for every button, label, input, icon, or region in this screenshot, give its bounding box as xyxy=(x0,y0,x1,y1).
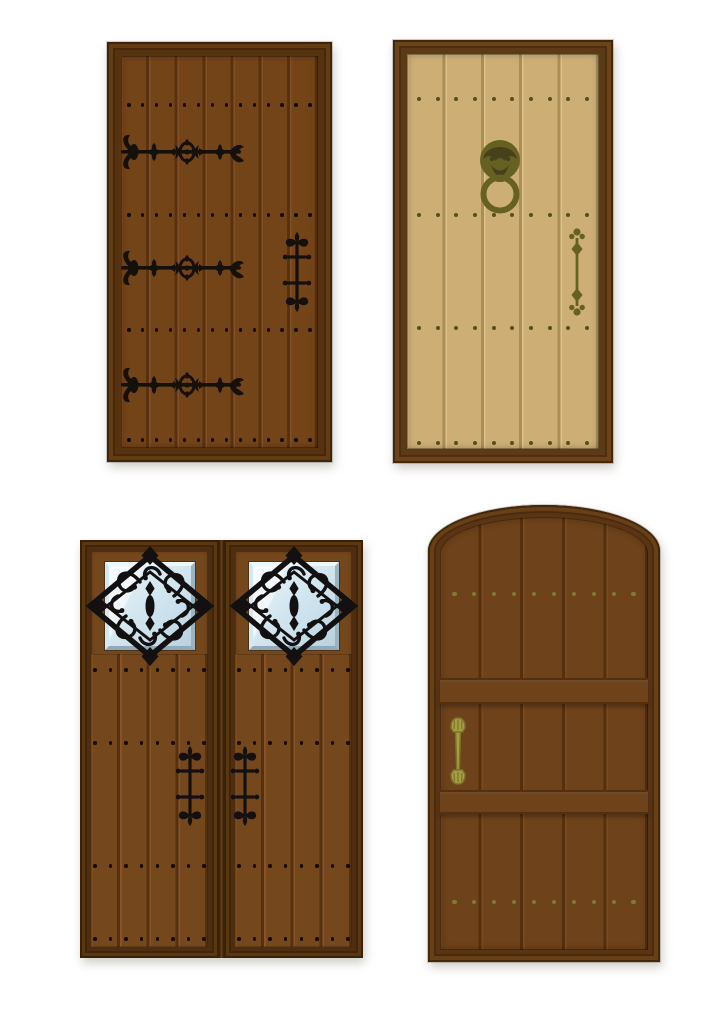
nail-dot xyxy=(346,937,350,941)
nail-dot xyxy=(532,592,537,597)
ornate-hinge-icon xyxy=(117,365,247,405)
nail-dot xyxy=(473,97,477,101)
nail-dot xyxy=(253,103,257,107)
nail-dot xyxy=(492,441,496,445)
nail-dot xyxy=(436,441,440,445)
nail-dot xyxy=(225,328,229,332)
nail-dot xyxy=(452,900,457,905)
nail-row xyxy=(237,667,350,673)
nail-dot xyxy=(187,741,191,745)
nail-dot xyxy=(239,328,243,332)
nail-dot xyxy=(183,438,187,442)
nail-dot xyxy=(155,438,159,442)
nail-dot xyxy=(93,937,97,941)
nail-dot xyxy=(202,864,206,868)
nail-dot xyxy=(124,864,128,868)
ring-knocker-icon xyxy=(470,136,530,220)
nail-dot xyxy=(548,441,552,445)
nail-dot xyxy=(268,668,272,672)
nail-dot xyxy=(183,328,187,332)
nail-dot xyxy=(294,103,298,107)
nail-dot xyxy=(331,864,335,868)
nail-dot xyxy=(140,668,144,672)
nail-row xyxy=(93,667,206,673)
nail-dot xyxy=(472,592,477,597)
nail-dot xyxy=(552,592,557,597)
cross-handle-icon xyxy=(172,746,208,826)
nail-dot xyxy=(202,668,206,672)
nail-dot xyxy=(473,441,477,445)
nail-dot xyxy=(473,326,477,330)
nail-dot xyxy=(566,213,570,217)
nail-dot xyxy=(237,864,241,868)
cross-handle-icon xyxy=(279,232,315,312)
nail-dot xyxy=(127,438,131,442)
nail-dot xyxy=(472,900,477,905)
nail-dot xyxy=(239,438,243,442)
nail-dot xyxy=(308,328,312,332)
window-grille-icon xyxy=(80,546,220,666)
nail-dot xyxy=(253,328,257,332)
nail-dot xyxy=(197,213,201,217)
nail-dot xyxy=(156,864,160,868)
nail-dot xyxy=(572,900,577,905)
nail-dot xyxy=(253,668,257,672)
nail-dot xyxy=(284,937,288,941)
window-grille-icon xyxy=(224,546,364,666)
nail-dot xyxy=(280,438,284,442)
nail-dot xyxy=(331,741,335,745)
nail-dot xyxy=(510,97,514,101)
nail-dot xyxy=(171,864,175,868)
cross-handle-icon xyxy=(227,746,263,826)
nail-dot xyxy=(294,438,298,442)
nail-dot xyxy=(93,741,97,745)
nail-row xyxy=(452,899,636,905)
nail-dot xyxy=(211,438,215,442)
nail-dot xyxy=(155,213,159,217)
nail-row xyxy=(127,212,312,218)
nail-dot xyxy=(585,213,589,217)
nail-dot xyxy=(612,592,617,597)
nail-dot xyxy=(169,103,173,107)
nail-dot xyxy=(612,900,617,905)
door-top-right xyxy=(393,40,613,463)
nail-row xyxy=(452,591,636,597)
nail-dot xyxy=(183,103,187,107)
nail-dot xyxy=(141,213,145,217)
nail-dot xyxy=(202,741,206,745)
nail-dot xyxy=(308,213,312,217)
nail-dot xyxy=(315,937,319,941)
nail-dot xyxy=(268,741,272,745)
nail-dot xyxy=(140,937,144,941)
nail-dot xyxy=(237,668,241,672)
illustration-canvas xyxy=(0,0,714,1024)
nail-dot xyxy=(156,937,160,941)
nail-dot xyxy=(548,213,552,217)
nail-dot xyxy=(268,864,272,868)
nail-dot xyxy=(308,438,312,442)
nail-dot xyxy=(141,438,145,442)
nail-dot xyxy=(308,103,312,107)
nail-row xyxy=(237,936,350,942)
nail-dot xyxy=(169,328,173,332)
nail-dot xyxy=(566,326,570,330)
nail-dot xyxy=(529,97,533,101)
nail-dot xyxy=(566,441,570,445)
nail-dot xyxy=(141,328,145,332)
nail-dot xyxy=(529,441,533,445)
nail-dot xyxy=(197,328,201,332)
nail-dot xyxy=(253,741,257,745)
nail-dot xyxy=(552,900,557,905)
nail-dot xyxy=(267,213,271,217)
nail-dot xyxy=(631,592,636,597)
nail-dot xyxy=(454,213,458,217)
nail-row xyxy=(417,325,589,331)
nail-dot xyxy=(197,103,201,107)
nail-dot xyxy=(492,97,496,101)
nail-dot xyxy=(280,328,284,332)
nail-dot xyxy=(237,741,241,745)
nail-dot xyxy=(436,97,440,101)
nail-dot xyxy=(315,741,319,745)
nail-dot xyxy=(284,864,288,868)
nail-dot xyxy=(454,97,458,101)
nail-dot xyxy=(417,326,421,330)
door-bottom-left-double xyxy=(80,540,363,958)
nail-dot xyxy=(187,937,191,941)
nail-dot xyxy=(300,937,304,941)
nail-dot xyxy=(156,741,160,745)
nail-dot xyxy=(225,103,229,107)
nail-dot xyxy=(512,592,517,597)
nail-dot xyxy=(280,103,284,107)
door-top-left xyxy=(107,42,332,462)
nail-dot xyxy=(109,864,113,868)
nail-dot xyxy=(140,864,144,868)
bar-handle-icon xyxy=(565,226,589,318)
nail-dot xyxy=(127,328,131,332)
nail-dot xyxy=(124,668,128,672)
nail-dot xyxy=(284,668,288,672)
nail-dot xyxy=(315,668,319,672)
nail-dot xyxy=(510,441,514,445)
nail-dot xyxy=(512,900,517,905)
nail-row xyxy=(127,327,312,333)
nail-dot xyxy=(346,864,350,868)
nail-dot xyxy=(124,937,128,941)
nail-dot xyxy=(141,103,145,107)
nail-dot xyxy=(592,592,597,597)
nail-dot xyxy=(127,213,131,217)
door-rail-upper xyxy=(440,678,648,704)
ornate-hinge-icon xyxy=(117,248,247,288)
nail-dot xyxy=(300,864,304,868)
nail-dot xyxy=(211,328,215,332)
nail-dot xyxy=(492,900,497,905)
nail-dot xyxy=(492,326,496,330)
nail-dot xyxy=(267,328,271,332)
nail-dot xyxy=(239,103,243,107)
nail-dot xyxy=(454,441,458,445)
nail-dot xyxy=(510,326,514,330)
nail-dot xyxy=(109,741,113,745)
nail-dot xyxy=(346,741,350,745)
nail-dot xyxy=(237,937,241,941)
nail-row xyxy=(127,102,312,108)
nail-row xyxy=(93,936,206,942)
nail-dot xyxy=(253,864,257,868)
nail-dot xyxy=(452,592,457,597)
nail-dot xyxy=(171,741,175,745)
nail-dot xyxy=(253,937,257,941)
nail-dot xyxy=(253,438,257,442)
nail-dot xyxy=(93,668,97,672)
nail-row xyxy=(127,437,312,443)
nail-row xyxy=(417,96,589,102)
door-rail-lower xyxy=(440,790,648,814)
nail-dot xyxy=(187,864,191,868)
nail-row xyxy=(417,440,589,446)
nail-dot xyxy=(492,592,497,597)
nail-dot xyxy=(346,668,350,672)
nail-dot xyxy=(284,741,288,745)
nail-dot xyxy=(300,741,304,745)
nail-row xyxy=(237,863,350,869)
nail-dot xyxy=(585,326,589,330)
nail-dot xyxy=(169,438,173,442)
nail-dot xyxy=(331,668,335,672)
nail-dot xyxy=(631,900,636,905)
nail-dot xyxy=(211,213,215,217)
nail-dot xyxy=(585,97,589,101)
nail-dot xyxy=(124,741,128,745)
nail-dot xyxy=(294,328,298,332)
nail-dot xyxy=(417,213,421,217)
nail-dot xyxy=(417,97,421,101)
door-leaf-left xyxy=(80,540,219,958)
nail-dot xyxy=(417,441,421,445)
nail-dot xyxy=(572,592,577,597)
nail-dot xyxy=(225,213,229,217)
nail-dot xyxy=(548,97,552,101)
nail-dot xyxy=(155,103,159,107)
nail-dot xyxy=(171,668,175,672)
nail-dot xyxy=(592,900,597,905)
ornate-hinge-icon xyxy=(117,132,247,172)
nail-dot xyxy=(109,937,113,941)
nail-dot xyxy=(239,213,243,217)
nail-dot xyxy=(267,438,271,442)
pull-handle-icon xyxy=(444,715,472,787)
nail-dot xyxy=(454,326,458,330)
nail-dot xyxy=(171,937,175,941)
nail-dot xyxy=(548,326,552,330)
nail-dot xyxy=(156,668,160,672)
nail-dot xyxy=(169,213,173,217)
nail-dot xyxy=(436,326,440,330)
nail-dot xyxy=(140,741,144,745)
nail-dot xyxy=(155,328,159,332)
nail-dot xyxy=(211,103,215,107)
nail-dot xyxy=(187,668,191,672)
nail-dot xyxy=(202,937,206,941)
nail-dot xyxy=(253,213,257,217)
nail-dot xyxy=(315,864,319,868)
nail-dot xyxy=(183,213,187,217)
nail-dot xyxy=(585,441,589,445)
nail-dot xyxy=(267,103,271,107)
door-bottom-right-arched xyxy=(428,505,660,962)
nail-dot xyxy=(566,97,570,101)
nail-dot xyxy=(268,937,272,941)
nail-dot xyxy=(532,900,537,905)
nail-dot xyxy=(294,213,298,217)
nail-dot xyxy=(225,438,229,442)
door-leaf-right xyxy=(224,540,363,958)
nail-dot xyxy=(197,438,201,442)
nail-dot xyxy=(109,668,113,672)
nail-dot xyxy=(300,668,304,672)
nail-dot xyxy=(93,864,97,868)
nail-dot xyxy=(331,937,335,941)
nail-dot xyxy=(529,326,533,330)
nail-dot xyxy=(436,213,440,217)
nail-dot xyxy=(127,103,131,107)
nail-dot xyxy=(280,213,284,217)
nail-row xyxy=(93,863,206,869)
